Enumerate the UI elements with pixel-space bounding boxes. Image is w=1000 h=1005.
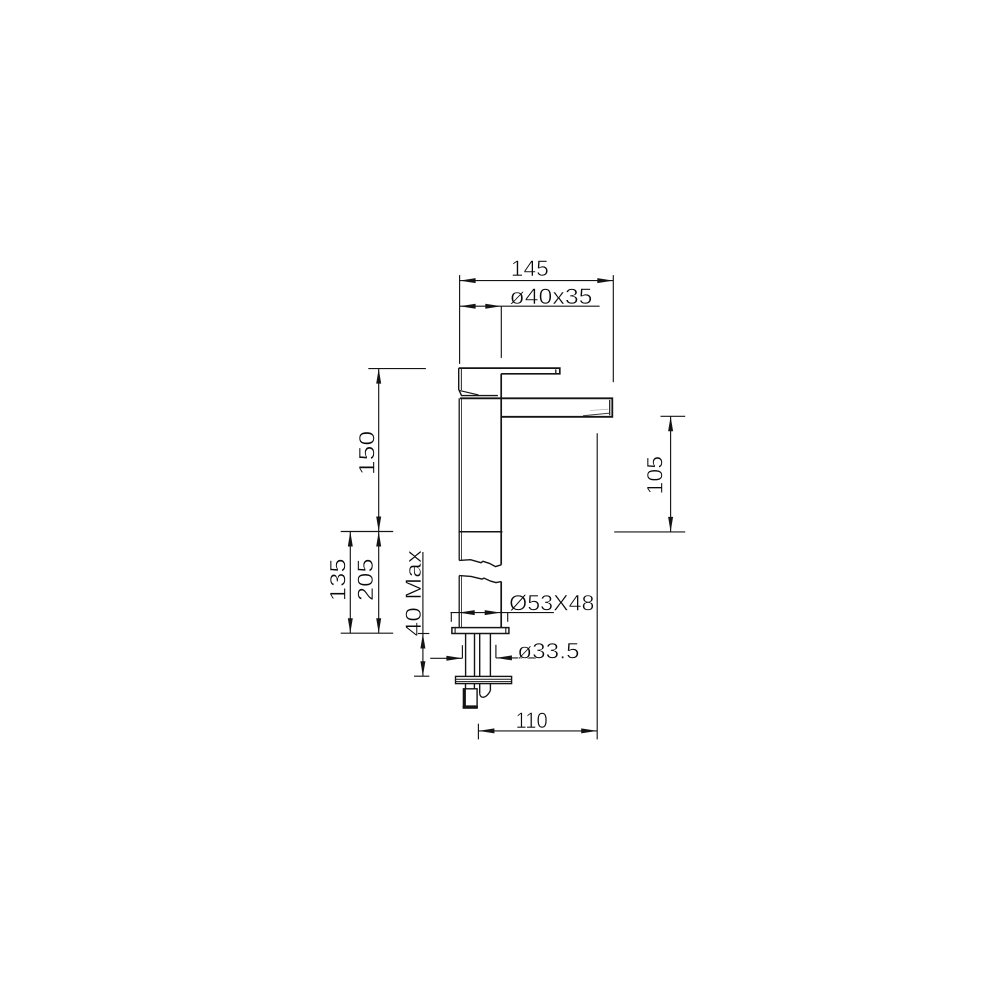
svg-text:ø33.5: ø33.5 [517, 638, 579, 663]
svg-text:40 Max: 40 Max [401, 550, 426, 637]
svg-text:205: 205 [353, 558, 378, 601]
svg-text:110: 110 [516, 708, 548, 733]
svg-text:150: 150 [354, 431, 379, 476]
svg-text:Ø53X48: Ø53X48 [509, 591, 594, 616]
svg-text:135: 135 [325, 558, 350, 601]
svg-text:ø40x35: ø40x35 [510, 284, 593, 309]
svg-text:145: 145 [511, 256, 549, 281]
svg-text:105: 105 [642, 456, 667, 495]
